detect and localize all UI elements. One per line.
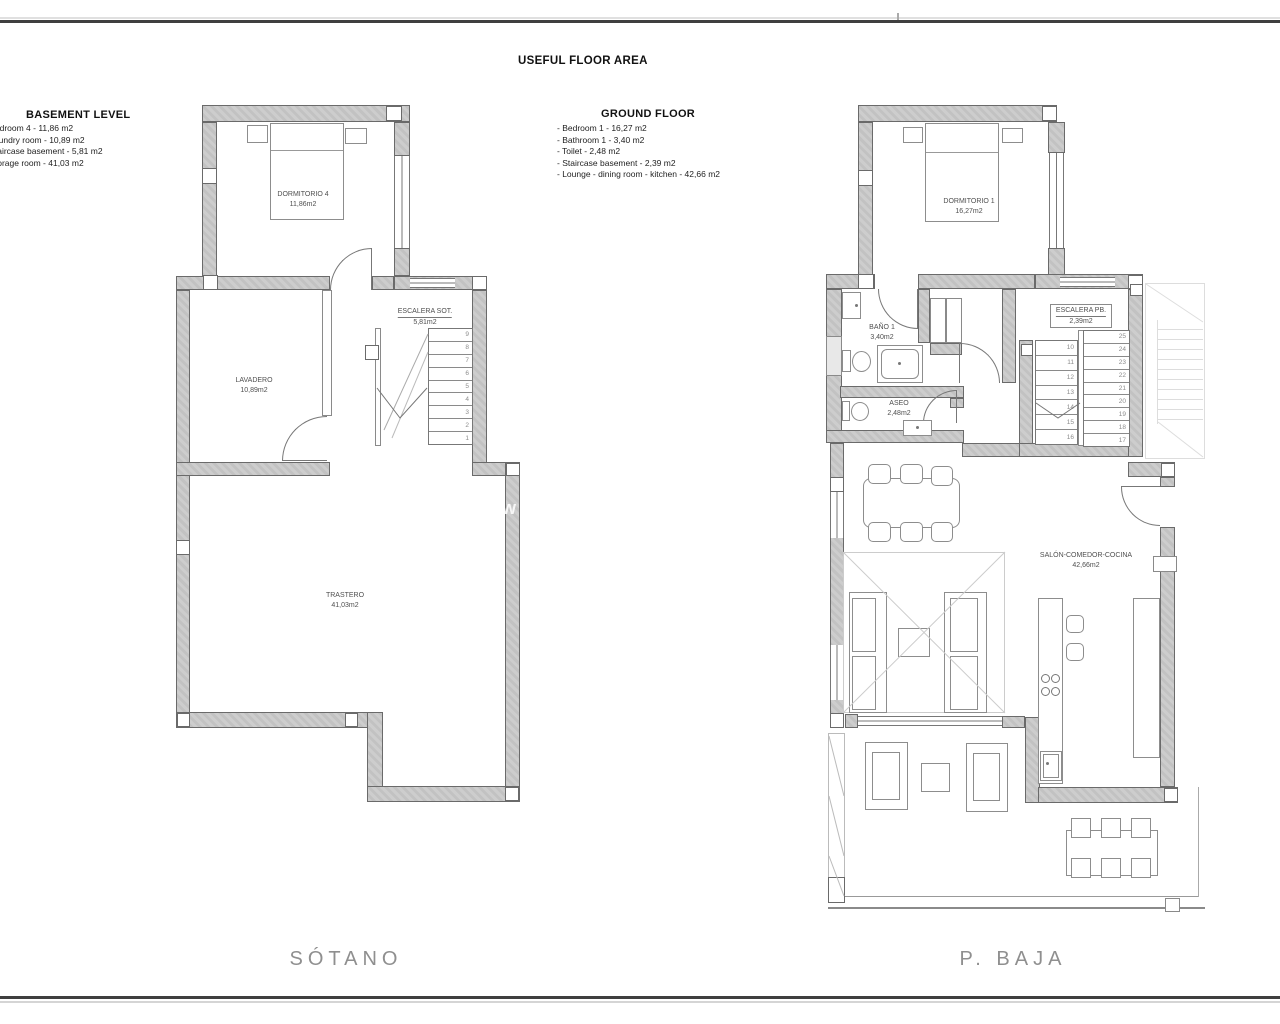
door-leaf: [917, 289, 918, 329]
dining-chair: [931, 522, 953, 542]
stair-number: 8: [465, 344, 469, 351]
wall: [858, 105, 1057, 122]
dining-chair: [900, 464, 923, 484]
wall-pillar: [858, 274, 874, 289]
shaft: [826, 336, 842, 376]
room-area: 5,81m2: [398, 318, 452, 328]
room-label-aseo: ASEO 2,48m2: [887, 399, 910, 419]
cooktop-burner: [1051, 674, 1060, 683]
partition-wall: [322, 290, 332, 416]
coffee-table: [898, 628, 930, 657]
stair-number: 7: [465, 357, 469, 364]
outdoor-side-table: [921, 763, 950, 792]
door-arc: [282, 416, 327, 461]
outdoor-chair: [1101, 858, 1121, 878]
room-label-dormitorio4: DORMITORIO 4 11,86m2: [277, 190, 328, 210]
sofa-cushion: [950, 656, 978, 710]
wall: [394, 122, 410, 156]
wall-pillar: [828, 877, 845, 903]
legend-item: - Bedroom 1 - 16,27 m2: [557, 123, 720, 135]
wall-pillar: [830, 713, 844, 728]
wall: [472, 290, 487, 476]
wall: [845, 714, 858, 728]
terrace-edge: [828, 907, 1205, 909]
window: [394, 156, 410, 248]
stair-step: 2: [429, 419, 472, 432]
legend-item: - Lounge - dining room - kitchen - 42,66…: [557, 169, 720, 181]
outdoor-chair: [1071, 818, 1091, 838]
faucet-dot: [855, 304, 858, 307]
room-label-dormitorio1: DORMITORIO 1 16,27m2: [943, 197, 994, 217]
stair-step: 23: [1084, 357, 1129, 370]
faucet-dot: [916, 426, 919, 429]
wall: [372, 276, 394, 290]
toilet-bowl: [852, 351, 871, 372]
sofa-cushion: [950, 598, 978, 652]
legend-item: - Laundry room - 10,89 m2: [0, 135, 103, 147]
stair-step: 21: [1084, 383, 1129, 396]
room-area: 42,66m2: [1040, 561, 1132, 571]
wall-pillar: [1021, 344, 1033, 356]
wall-pillar: [472, 276, 487, 290]
sheet-bottom-border: [0, 996, 1280, 999]
wall: [1048, 122, 1065, 153]
legend-item: - Staircase basement - 2,39 m2: [557, 158, 720, 170]
wardrobe: [946, 298, 962, 343]
wall: [930, 343, 962, 355]
kitchen-counter: [1133, 598, 1160, 758]
room-name: ESCALERA PB.: [1056, 306, 1106, 317]
stair-step: 22: [1084, 370, 1129, 383]
stair-step: 7: [429, 355, 472, 368]
stair-step: 13: [1036, 386, 1077, 401]
floor-name-sotano: SÓTANO: [290, 948, 403, 971]
bed-fold-line: [926, 152, 998, 153]
outdoor-armchair-cushion: [872, 752, 900, 800]
window: [830, 492, 844, 538]
basement-legend-heading: BASEMENT LEVEL: [26, 109, 130, 121]
stair-step: 11: [1036, 356, 1077, 371]
sheet-top-border: [0, 20, 1280, 23]
stair-step: 9: [429, 329, 472, 342]
stair-number: 25: [1119, 333, 1126, 340]
window: [1049, 153, 1064, 248]
stair-number: 6: [465, 370, 469, 377]
room-area: 41,03m2: [326, 601, 364, 611]
stair-number: 15: [1067, 419, 1074, 426]
nightstand: [903, 127, 923, 143]
stair-number: 3: [465, 409, 469, 416]
stair-step: 25: [1084, 331, 1129, 344]
dining-chair: [931, 466, 953, 486]
terrace-side-strip: [828, 733, 845, 887]
bar-stool: [1066, 643, 1084, 661]
room-name: DORMITORIO 1: [943, 197, 994, 207]
stair-number: 24: [1119, 346, 1126, 353]
room-name: ESCALERA SOT.: [398, 307, 452, 318]
door-leaf: [371, 248, 372, 290]
stair-number: 13: [1067, 389, 1074, 396]
legend-item: - Bedroom 4 - 11,86 m2: [0, 123, 103, 135]
stair-step: 8: [429, 342, 472, 355]
exterior-stair-steps: [1157, 320, 1203, 424]
bathroom-sink: [842, 292, 861, 319]
room-label-escalera-sot: ESCALERA SOT. 5,81m2: [398, 307, 452, 328]
door-leaf: [282, 460, 327, 461]
toilet-tank: [842, 350, 851, 372]
stair-number: 18: [1119, 424, 1126, 431]
wall: [367, 786, 520, 802]
stair-number: 23: [1119, 359, 1126, 366]
watermark: w: [502, 498, 516, 519]
room-area: 16,27m2: [943, 207, 994, 217]
dining-chair: [868, 522, 891, 542]
wall-pillar: [365, 345, 379, 360]
wall-pillar: [858, 170, 873, 186]
nightstand: [247, 125, 268, 143]
stair-step: 14: [1036, 400, 1077, 415]
stair-number: 1: [465, 435, 469, 442]
cooktop-burner: [1051, 687, 1060, 696]
wall: [1002, 289, 1016, 383]
stair-step: 4: [429, 393, 472, 406]
sofa-cushion: [852, 656, 876, 710]
stair-step: 1: [429, 432, 472, 444]
stair-step: 6: [429, 368, 472, 381]
bed-fold-line: [271, 150, 343, 151]
terrace-edge: [845, 896, 1198, 897]
stair-number: 2: [465, 422, 469, 429]
stair-number: 20: [1119, 398, 1126, 405]
wall-box: [1153, 556, 1177, 572]
wall-pillar: [345, 713, 358, 727]
page-title: USEFUL FLOOR AREA: [518, 55, 648, 67]
wall: [1002, 716, 1025, 728]
ground-legend-heading: GROUND FLOOR: [601, 108, 695, 120]
wall-pillar: [203, 275, 218, 290]
room-area: 2,39m2: [1056, 317, 1106, 327]
wall: [1128, 289, 1143, 457]
wall-pillar: [505, 787, 519, 801]
door-arc: [330, 248, 372, 290]
stair-number: 9: [465, 331, 469, 338]
wall-pillar: [1161, 463, 1175, 477]
nightstand: [1002, 128, 1023, 143]
stair-step: 3: [429, 406, 472, 419]
faucet-dot: [1046, 762, 1049, 765]
stair-step: 18: [1084, 421, 1129, 434]
room-name: SALÓN-COMEDOR-COCINA: [1040, 551, 1132, 561]
wall-pillar: [1164, 788, 1178, 802]
window: [1060, 277, 1115, 287]
stair-number: 22: [1119, 372, 1126, 379]
room-area: 10,89m2: [235, 386, 272, 396]
floor-plan-sheet: USEFUL FLOOR AREA BASEMENT LEVEL - Bedro…: [0, 0, 1280, 1024]
wall: [176, 462, 330, 476]
stair-number: 5: [465, 383, 469, 390]
outdoor-chair: [1131, 818, 1151, 838]
wall: [202, 122, 217, 290]
ground-legend: - Bedroom 1 - 16,27 m2 - Bathroom 1 - 3,…: [557, 123, 720, 181]
wall: [1038, 787, 1178, 803]
stair-number: 4: [465, 396, 469, 403]
dining-chair: [868, 464, 891, 484]
entry-door-arc: [1121, 487, 1160, 526]
stair-number: 16: [1067, 434, 1074, 441]
stair-step: 10: [1036, 341, 1077, 356]
legend-item: - Bathroom 1 - 3,40 m2: [557, 135, 720, 147]
kitchen-sink-basin: [1043, 754, 1059, 778]
wall-pillar: [830, 477, 844, 492]
wall: [858, 122, 873, 289]
staircase-left-flight: 10 11 12 13 14 15 16: [1035, 340, 1078, 445]
toilet-bowl: [851, 402, 869, 421]
room-label-salon: SALÓN-COMEDOR-COCINA 42,66m2: [1040, 551, 1132, 571]
stair-step: 24: [1084, 344, 1129, 357]
wall: [1048, 248, 1065, 276]
sheet-top-border-light: [0, 17, 1280, 19]
wardrobe: [930, 298, 946, 343]
wall-pillar: [176, 540, 190, 555]
bar-stool: [1066, 615, 1084, 633]
room-label-escalera-pb: ESCALERA PB. 2,39m2: [1056, 306, 1106, 327]
outdoor-armchair-cushion: [973, 753, 1000, 801]
stair-step: 12: [1036, 371, 1077, 386]
legend-item: - Toilet - 2,48 m2: [557, 146, 720, 158]
room-name: ASEO: [887, 399, 910, 409]
sofa-cushion: [852, 598, 876, 652]
terrace-corner-post: [1165, 898, 1180, 912]
stair-number: 11: [1067, 359, 1074, 366]
stair-number: 17: [1119, 437, 1126, 444]
wall: [962, 443, 1020, 457]
stair-number: 10: [1067, 344, 1074, 351]
cooktop-burner: [1041, 687, 1050, 696]
door-leaf: [956, 390, 957, 423]
stair-number: 19: [1119, 411, 1126, 418]
floor-name-pbaja: P. BAJA: [960, 948, 1067, 971]
sheet-top-tick: [897, 13, 899, 20]
wall-pillar: [1130, 284, 1143, 296]
legend-item: - Storage room - 41,03 m2: [0, 158, 103, 170]
basement-legend: - Bedroom 4 - 11,86 m2 - Laundry room - …: [0, 123, 103, 169]
room-name: LAVADERO: [235, 376, 272, 386]
wall-pillar: [1042, 106, 1057, 121]
stair-step: 19: [1084, 408, 1129, 421]
terrace-edge: [1198, 787, 1199, 897]
wall: [202, 105, 410, 122]
stair-number: 21: [1119, 385, 1126, 392]
room-area: 11,86m2: [277, 200, 328, 210]
room-area: 2,48m2: [887, 409, 910, 419]
wall: [394, 248, 410, 276]
outdoor-chair: [1071, 858, 1091, 878]
window: [830, 645, 844, 700]
stair-step: 20: [1084, 395, 1129, 408]
wall-pillar: [506, 463, 520, 476]
staircase-right-flight: 25 24 23 22 21 20 19 18 17: [1083, 330, 1130, 447]
nightstand: [345, 128, 367, 144]
legend-item: - Staircase basement - 5,81 m2: [0, 146, 103, 158]
stair-step: 17: [1084, 434, 1129, 446]
stair-number: 12: [1067, 374, 1074, 381]
wall: [918, 289, 930, 343]
wall: [1019, 340, 1033, 457]
wall: [1160, 477, 1175, 487]
wall: [176, 290, 190, 728]
wall: [472, 462, 508, 476]
wall-pillar: [202, 168, 217, 184]
wall: [918, 274, 1035, 289]
room-area: 3,40m2: [869, 333, 895, 343]
room-name: TRASTERO: [326, 591, 364, 601]
room-label-trastero: TRASTERO 41,03m2: [326, 591, 364, 611]
outdoor-chair: [1101, 818, 1121, 838]
stair-number: 14: [1067, 404, 1074, 411]
drain-dot: [898, 362, 901, 365]
sheet-bottom-border-light: [0, 1001, 1280, 1003]
outdoor-chair: [1131, 858, 1151, 878]
dining-chair: [900, 522, 923, 542]
door-arc: [960, 343, 1000, 383]
wall-pillar: [386, 106, 402, 121]
cooktop-burner: [1041, 674, 1050, 683]
room-name: DORMITORIO 4: [277, 190, 328, 200]
door-leaf: [959, 343, 960, 383]
door-leaf: [1121, 486, 1160, 487]
wall-pillar: [177, 713, 190, 727]
sliding-glass-door: [845, 716, 1025, 726]
stair-step: 15: [1036, 415, 1077, 430]
stair-step: 16: [1036, 430, 1077, 444]
room-label-bano1: BAÑO 1 3,40m2: [869, 323, 895, 343]
stair-step: 5: [429, 381, 472, 394]
room-name: BAÑO 1: [869, 323, 895, 333]
wall: [826, 430, 964, 443]
wall: [176, 276, 330, 290]
toilet-tank: [842, 401, 850, 421]
staircase-basement: 9 8 7 6 5 4 3 2 1: [428, 328, 473, 445]
room-label-lavadero: LAVADERO 10,89m2: [235, 376, 272, 396]
window: [410, 278, 455, 288]
